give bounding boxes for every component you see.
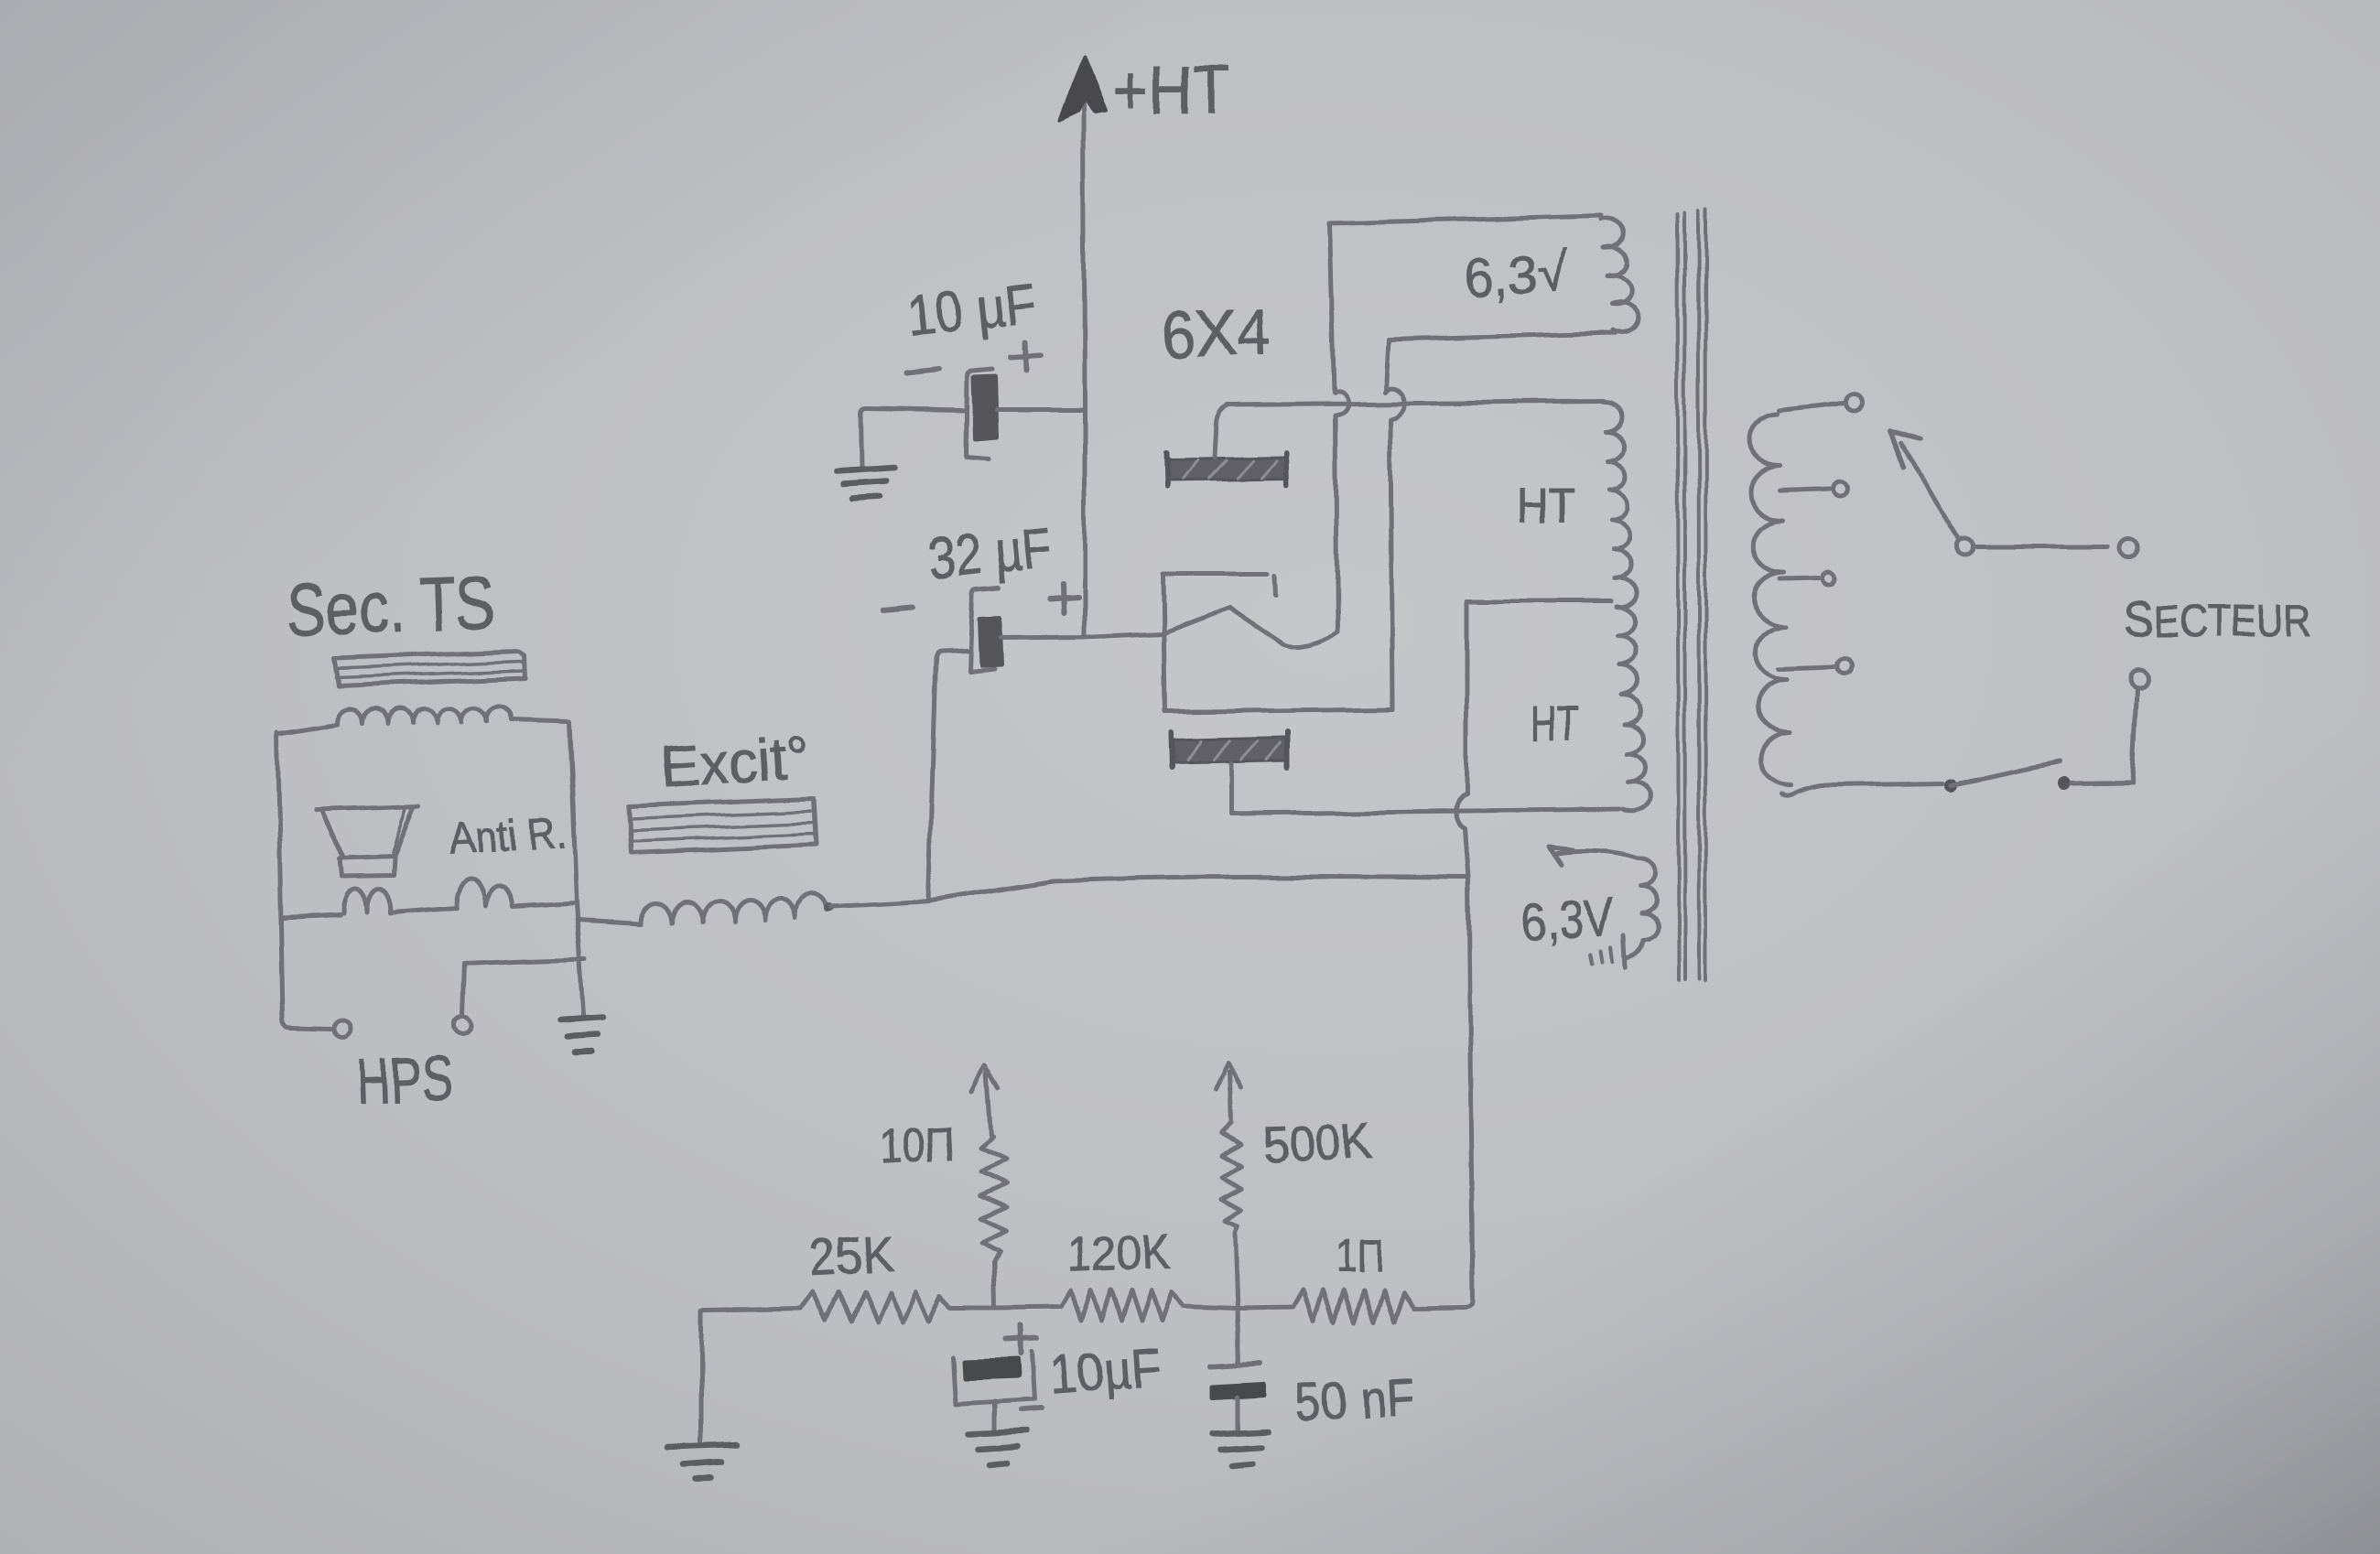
svg-text:6X4: 6X4	[1161, 296, 1271, 372]
svg-text:Excit°: Excit°	[659, 724, 812, 800]
svg-text:Anti R.: Anti R.	[449, 809, 568, 864]
svg-text:50 nF: 50 nF	[1293, 1367, 1415, 1433]
svg-text:25K: 25K	[808, 1224, 893, 1286]
svg-text:6,3√: 6,3√	[1462, 242, 1568, 308]
svg-text:500K: 500K	[1261, 1114, 1371, 1172]
svg-text:+HT: +HT	[1113, 52, 1230, 128]
svg-text:10 µF: 10 µF	[904, 272, 1038, 348]
svg-text:HPS: HPS	[355, 1042, 455, 1117]
svg-text:32 µF: 32 µF	[925, 515, 1055, 591]
svg-text:10Π: 10Π	[879, 1117, 957, 1174]
svg-text:120K: 120K	[1066, 1224, 1171, 1282]
svg-text:HT: HT	[1517, 479, 1575, 534]
svg-text:HT: HT	[1531, 696, 1578, 751]
svg-text:Sec. TS: Sec. TS	[285, 561, 496, 652]
svg-text:SECTEUR: SECTEUR	[2124, 589, 2311, 647]
svg-text:10µF: 10µF	[1047, 1337, 1163, 1404]
svg-text:1Π: 1Π	[1336, 1229, 1384, 1282]
svg-text:6,3V: 6,3V	[1520, 887, 1616, 953]
